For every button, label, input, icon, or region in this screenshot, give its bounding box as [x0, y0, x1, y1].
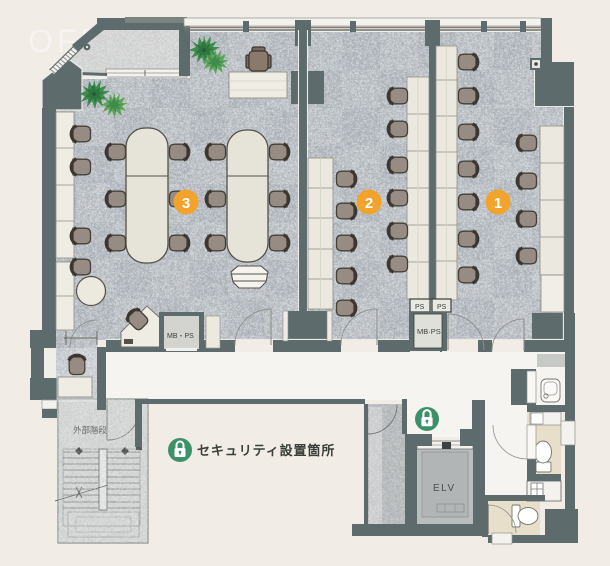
- svg-text:2: 2: [365, 195, 373, 212]
- svg-text:ELV: ELV: [433, 483, 456, 494]
- svg-text:1: 1: [494, 195, 502, 212]
- svg-text:PS: PS: [415, 304, 425, 311]
- svg-text:MB·PS: MB·PS: [417, 327, 441, 336]
- svg-text:PS: PS: [437, 304, 447, 311]
- svg-text:セキュリティ設置箇所: セキュリティ設置箇所: [197, 443, 335, 458]
- svg-text:3: 3: [182, 195, 190, 212]
- svg-text:MB・PS: MB・PS: [167, 333, 194, 340]
